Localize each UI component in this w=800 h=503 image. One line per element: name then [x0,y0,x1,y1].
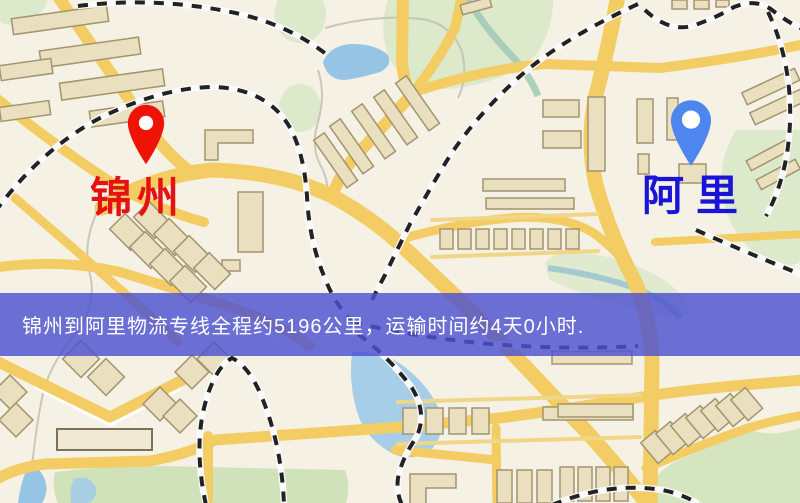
origin-pin [124,101,168,168]
destination-pin [666,99,716,167]
pin-body [128,105,164,164]
pin-hole [139,116,153,130]
pin-hole [682,111,700,129]
pin-body [671,100,711,166]
map-background [0,0,800,503]
route-info-banner: 锦州到阿里物流专线全程约5196公里，运输时间约4天0小时. [0,293,800,356]
origin-pin-icon [124,101,168,168]
origin-city-label: 锦州 [90,178,184,220]
route-info-text: 锦州到阿里物流专线全程约5196公里，运输时间约4天0小时. [22,310,584,339]
destination-city-label: 阿里 [642,176,750,218]
destination-pin-icon [666,99,716,167]
map-screenshot: 锦州 阿里 锦州到阿里物流专线全程约5196公里，运输时间约4天0小时. [0,0,800,503]
